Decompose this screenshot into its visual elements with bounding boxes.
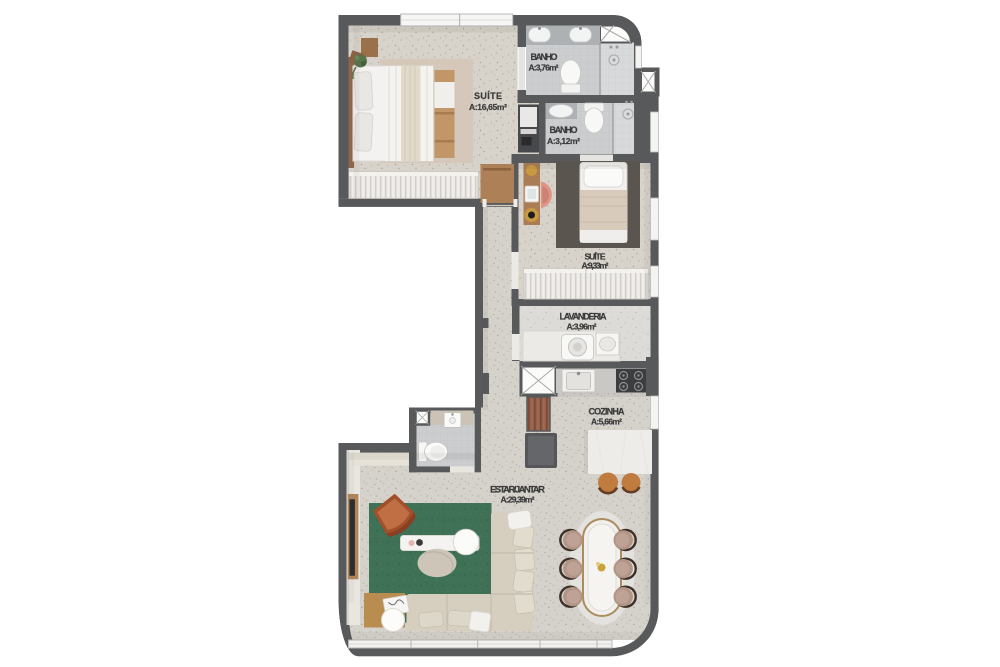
svg-text:A:5,66m²: A:5,66m² (591, 417, 622, 427)
svg-text:A:3,96m²: A:3,96m² (567, 322, 597, 332)
svg-text:A:3,12m²: A:3,12m² (547, 136, 580, 146)
svg-text:SUÍTE: SUÍTE (474, 91, 502, 101)
svg-text:A:16,65m²: A:16,65m² (469, 102, 507, 112)
svg-text:BANHO: BANHO (550, 125, 578, 135)
svg-text:A:3,76m²: A:3,76m² (529, 63, 559, 73)
svg-text:BANHO: BANHO (531, 52, 558, 62)
svg-text:A:9,33m²: A:9,33m² (582, 261, 609, 271)
svg-text:LAVANDERIA: LAVANDERIA (560, 312, 608, 322)
svg-text:A:29,39m²: A:29,39m² (501, 495, 535, 505)
svg-text:COZINHA: COZINHA (589, 407, 626, 417)
